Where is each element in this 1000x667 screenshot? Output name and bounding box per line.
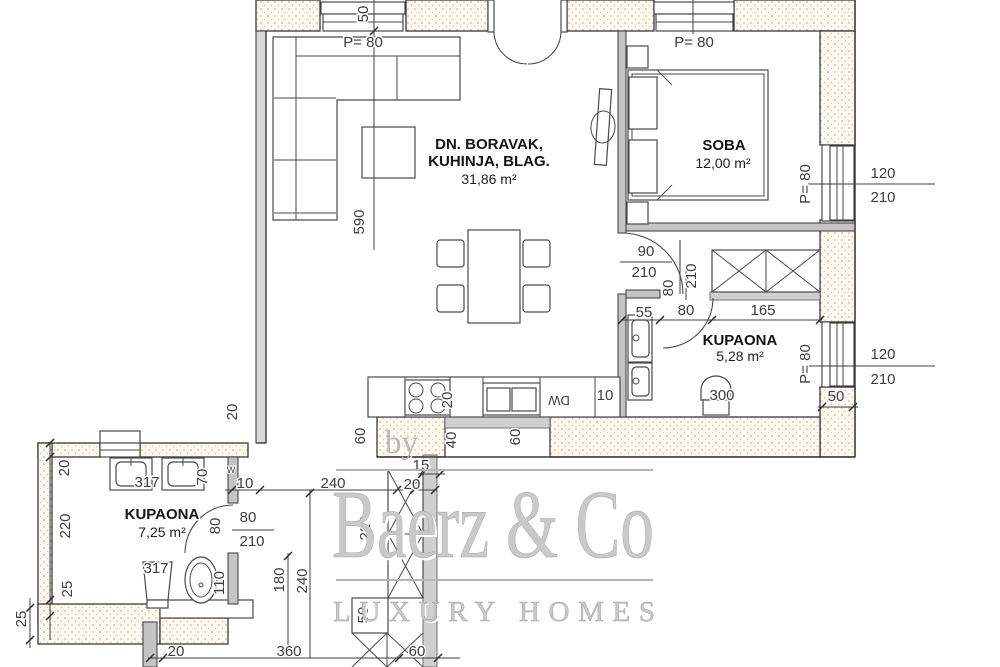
dishwasher-label: DW	[547, 393, 569, 408]
room-name-lower-bathroom: KUPAONA	[125, 506, 200, 523]
dimension-label: 50	[828, 388, 845, 405]
dimension-label: 55	[636, 304, 653, 321]
bath-step	[160, 600, 253, 618]
room-area-bathroom: 5,28 m²	[716, 348, 764, 364]
wall-opening-lintel	[445, 417, 550, 428]
dimension-label: 25	[13, 611, 30, 628]
dimension-label: P= 80	[797, 164, 814, 204]
dimension-label: 20	[224, 404, 241, 421]
window-bedroom-top	[654, 2, 734, 31]
pillow	[629, 140, 657, 193]
dimension-label: 165	[750, 302, 775, 319]
dimension-label: 20	[439, 392, 456, 409]
dimension-label: P= 80	[343, 34, 383, 51]
dimension-label: 80	[678, 302, 695, 319]
dimension-label: 210	[631, 264, 656, 281]
dimension-label: 80	[207, 518, 224, 535]
washer-mark-label: W	[227, 465, 236, 475]
room-area-living: 31,86 m²	[461, 171, 517, 187]
nightstand	[627, 46, 648, 68]
dimension-label: P= 80	[797, 344, 814, 384]
dimension-label: 10	[237, 475, 254, 492]
dimension-label: 220	[57, 513, 74, 538]
floor-plan-image: P= 8050590P= 80P= 80120210P= 80120210509…	[0, 0, 1000, 667]
dimension-label: 60	[507, 429, 524, 446]
window-lower-bathroom	[100, 431, 140, 457]
kitchen-sink	[483, 383, 540, 415]
dimension-label: 360	[276, 643, 301, 660]
nightstand	[627, 202, 648, 224]
dimension-label: 590	[351, 209, 368, 234]
dimension-label: 80	[660, 280, 677, 297]
bathroom-basin	[628, 363, 652, 400]
dimension-label: 50	[355, 6, 372, 23]
dimension-label: 80	[240, 509, 257, 526]
dimension-label: 110	[211, 571, 228, 595]
dimension-label: 25	[59, 581, 76, 598]
standing-mirror	[588, 88, 617, 165]
room-area-lower-bathroom: 7,25 m²	[138, 524, 186, 540]
floor-plan-svg: P= 8050590P= 80P= 80120210P= 80120210509…	[0, 0, 1000, 667]
watermark-by: by	[385, 425, 419, 461]
watermark-brand: Baerz & Co	[332, 471, 654, 578]
dimension-label: 210	[683, 263, 700, 288]
dimension-label: 180	[271, 567, 288, 592]
pillow	[629, 77, 657, 129]
bathroom-basin	[628, 315, 652, 362]
dimension-label: 90	[638, 243, 655, 260]
dimension-label: 10	[597, 387, 614, 404]
room-name-living: KUHINJA, BLAG.	[428, 153, 550, 170]
dimension-label: 120	[870, 165, 895, 182]
dimension-label: 300	[709, 387, 734, 404]
fixture-code-label: 317	[134, 474, 159, 491]
dimension-label: 240	[294, 568, 311, 593]
dining-set	[437, 230, 550, 323]
kitchen-counter	[368, 377, 620, 417]
bed	[628, 70, 768, 200]
wardrobe-closet	[712, 250, 820, 292]
dimension-label: 210	[239, 533, 264, 550]
dimension-label: 20	[56, 460, 73, 477]
window-bathroom-right	[822, 322, 855, 387]
dimension-label: 40	[443, 432, 460, 449]
dimension-label: 60	[352, 428, 369, 445]
room-name-bedroom: SOBA	[702, 137, 746, 154]
room-name-bathroom: KUPAONA	[703, 332, 778, 349]
dimension-label: 20	[168, 643, 185, 660]
dimension-label: 120	[870, 346, 895, 363]
dimension-label: 60	[409, 643, 426, 660]
room-name-living: DN. BORAVAK,	[435, 136, 543, 153]
dimension-label: 70	[194, 469, 211, 486]
dimension-label: P= 80	[674, 34, 714, 51]
room-area-bedroom: 12,00 m²	[695, 155, 751, 171]
door-balcony-double	[488, 0, 567, 64]
window-bedroom-right	[822, 145, 855, 221]
dimension-label: 210	[870, 371, 895, 388]
coffee-table	[362, 127, 415, 178]
dimension-label: 210	[870, 189, 895, 206]
fixture-code-label: 317	[143, 560, 168, 577]
